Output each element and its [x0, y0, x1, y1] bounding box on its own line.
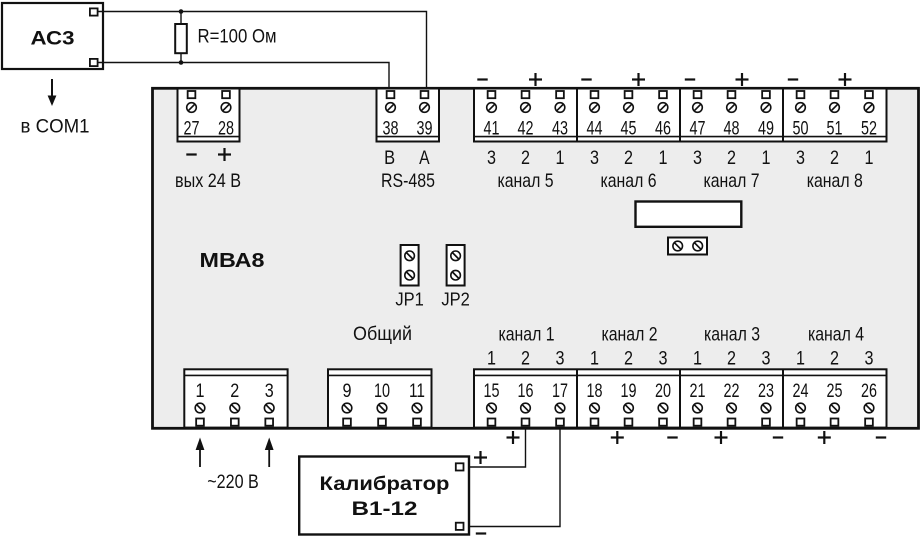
- svg-text:9: 9: [343, 380, 352, 402]
- svg-text:RS-485: RS-485: [381, 170, 435, 192]
- svg-text:21: 21: [690, 380, 706, 402]
- svg-text:39: 39: [417, 118, 433, 140]
- svg-text:2: 2: [727, 147, 736, 169]
- svg-text:МВА8: МВА8: [200, 250, 265, 272]
- svg-text:канал 8: канал 8: [807, 170, 863, 192]
- svg-text:2: 2: [727, 348, 736, 370]
- svg-text:в COM1: в COM1: [21, 116, 90, 138]
- svg-text:1: 1: [590, 348, 599, 370]
- svg-text:25: 25: [827, 380, 843, 402]
- svg-text:2: 2: [830, 348, 839, 370]
- svg-text:В1-12: В1-12: [352, 499, 418, 520]
- svg-text:23: 23: [758, 380, 774, 402]
- svg-text:17: 17: [552, 380, 568, 402]
- svg-text:канал 1: канал 1: [499, 324, 555, 346]
- svg-text:19: 19: [621, 380, 637, 402]
- svg-text:3: 3: [659, 348, 668, 370]
- svg-text:3: 3: [865, 348, 874, 370]
- svg-text:R=100 Ом: R=100 Ом: [198, 26, 277, 48]
- svg-text:JP2: JP2: [441, 290, 470, 310]
- svg-text:вых 24 В: вых 24 В: [175, 170, 241, 192]
- svg-text:канал 3: канал 3: [704, 324, 760, 346]
- svg-text:1: 1: [196, 380, 205, 402]
- svg-text:11: 11: [409, 380, 425, 402]
- svg-text:47: 47: [690, 118, 706, 140]
- svg-text:50: 50: [793, 118, 809, 140]
- svg-text:20: 20: [655, 380, 671, 402]
- svg-text:44: 44: [587, 118, 603, 140]
- svg-text:1: 1: [865, 147, 874, 169]
- svg-text:2: 2: [521, 147, 530, 169]
- svg-text:49: 49: [758, 118, 774, 140]
- svg-text:3: 3: [693, 147, 702, 169]
- svg-text:канал 5: канал 5: [498, 170, 554, 192]
- svg-text:2: 2: [830, 147, 839, 169]
- svg-text:3: 3: [590, 147, 599, 169]
- svg-text:канал 2: канал 2: [602, 324, 658, 346]
- svg-text:10: 10: [374, 380, 390, 402]
- svg-text:АС3: АС3: [31, 28, 75, 50]
- svg-text:18: 18: [587, 380, 603, 402]
- svg-text:JP1: JP1: [395, 290, 424, 310]
- svg-text:45: 45: [621, 118, 637, 140]
- svg-text:22: 22: [724, 380, 740, 402]
- svg-text:52: 52: [861, 118, 877, 140]
- svg-text:2: 2: [624, 147, 633, 169]
- svg-text:1: 1: [693, 348, 702, 370]
- svg-text:41: 41: [484, 118, 500, 140]
- svg-text:А: А: [419, 147, 430, 169]
- svg-text:3: 3: [487, 147, 496, 169]
- svg-text:1: 1: [796, 348, 805, 370]
- svg-text:38: 38: [383, 118, 399, 140]
- svg-text:Общий: Общий: [353, 323, 412, 345]
- svg-text:51: 51: [827, 118, 843, 140]
- svg-text:24: 24: [793, 380, 809, 402]
- svg-text:1: 1: [762, 147, 771, 169]
- svg-text:1: 1: [659, 147, 668, 169]
- svg-text:канал 6: канал 6: [601, 170, 657, 192]
- svg-text:3: 3: [556, 348, 565, 370]
- svg-text:3: 3: [762, 348, 771, 370]
- svg-text:26: 26: [861, 380, 877, 402]
- svg-text:42: 42: [518, 118, 534, 140]
- svg-text:1: 1: [487, 348, 496, 370]
- svg-text:27: 27: [184, 118, 200, 140]
- svg-text:2: 2: [230, 380, 239, 402]
- svg-text:канал 7: канал 7: [704, 170, 760, 192]
- svg-text:15: 15: [484, 380, 500, 402]
- svg-text:2: 2: [624, 348, 633, 370]
- svg-text:Калибратор: Калибратор: [320, 474, 450, 495]
- svg-text:В: В: [384, 147, 395, 169]
- svg-text:46: 46: [655, 118, 671, 140]
- svg-text:16: 16: [518, 380, 534, 402]
- svg-text:28: 28: [218, 118, 234, 140]
- svg-text:~220 В: ~220 В: [207, 471, 259, 493]
- svg-text:3: 3: [796, 147, 805, 169]
- svg-text:1: 1: [556, 147, 565, 169]
- svg-text:43: 43: [552, 118, 568, 140]
- svg-text:3: 3: [265, 380, 274, 402]
- svg-text:2: 2: [521, 348, 530, 370]
- svg-text:48: 48: [724, 118, 740, 140]
- svg-text:канал 4: канал 4: [808, 324, 864, 346]
